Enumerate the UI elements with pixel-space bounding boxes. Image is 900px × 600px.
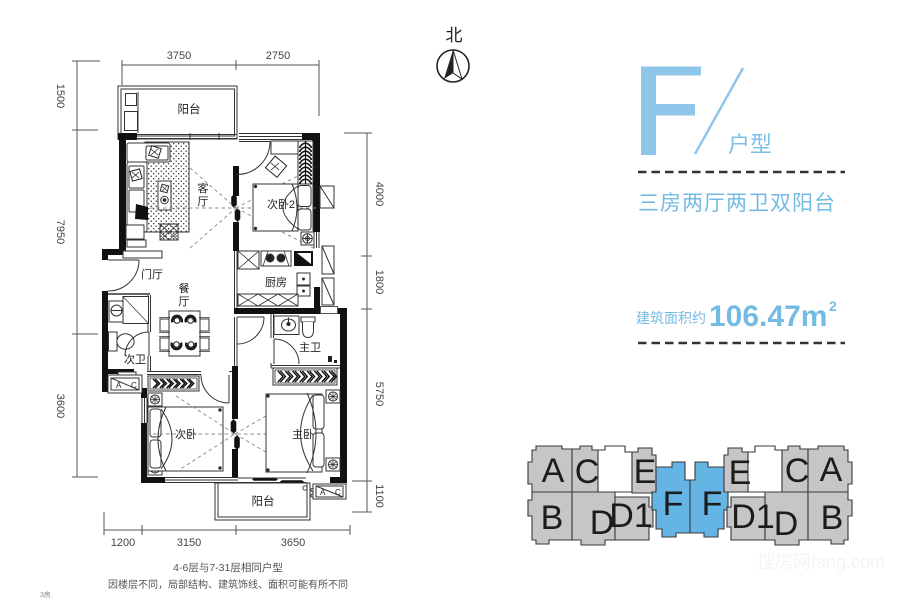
svg-text:C: C [131,381,137,390]
svg-text:户型: 户型 [728,132,772,157]
svg-text:7950: 7950 [54,220,66,244]
svg-text:建筑面积约: 建筑面积约 [636,310,706,326]
svg-text:次卧2: 次卧2 [267,197,295,211]
svg-text:北: 北 [446,26,463,45]
svg-text:因楼层不同，局部结构、建筑饰线、面积可能有所不同: 因楼层不同，局部结构、建筑饰线、面积可能有所不同 [108,578,348,591]
svg-text:3750: 3750 [167,50,191,62]
svg-text:1500: 1500 [54,84,66,108]
svg-text:A: A [820,451,843,489]
svg-text:阳台: 阳台 [178,102,201,116]
svg-text:阳台: 阳台 [252,494,275,508]
svg-text:A: A [542,452,565,490]
svg-text:厅: 厅 [179,296,190,308]
svg-text:A: A [320,488,326,497]
svg-text:C: C [785,452,810,490]
svg-text:4000: 4000 [373,182,385,206]
svg-text:E: E [634,453,657,491]
svg-text:D1: D1 [731,498,774,536]
svg-text:门厅: 门厅 [141,267,163,281]
svg-text:2: 2 [829,298,837,314]
svg-text:三房两厅两卫双阳台: 三房两厅两卫双阳台 [638,192,836,215]
svg-text:主卫: 主卫 [299,341,321,354]
svg-text:E: E [729,454,752,492]
svg-text:5750: 5750 [373,382,385,406]
svg-text:3150: 3150 [177,537,201,549]
svg-text:F: F [663,485,684,523]
svg-text:F: F [702,485,723,523]
svg-text:1800: 1800 [373,270,385,294]
svg-text:A: A [116,381,122,390]
svg-text:3600: 3600 [54,394,66,418]
svg-text:3650: 3650 [281,537,305,549]
svg-text:B: B [821,499,844,537]
svg-text:4-6层与7-31层相同户型: 4-6层与7-31层相同户型 [173,561,283,574]
svg-text:1200: 1200 [111,537,135,549]
svg-text:主卧: 主卧 [292,428,314,441]
svg-text:1100: 1100 [373,484,385,508]
svg-text:B: B [541,499,564,537]
svg-text:次卫: 次卫 [124,352,146,366]
svg-text:D1: D1 [609,497,652,535]
svg-text:2750: 2750 [266,50,290,62]
svg-text:厅: 厅 [198,196,209,208]
svg-text:C: C [335,488,341,497]
svg-text:D: D [774,505,799,543]
svg-text:餐: 餐 [179,281,190,295]
svg-text:搜房网fang.com: 搜房网fang.com [757,552,885,572]
svg-text:3房.: 3房. [40,590,53,599]
svg-text:厨房: 厨房 [265,276,287,289]
svg-text:106.47m: 106.47m [709,300,827,333]
svg-text:C: C [575,453,600,491]
